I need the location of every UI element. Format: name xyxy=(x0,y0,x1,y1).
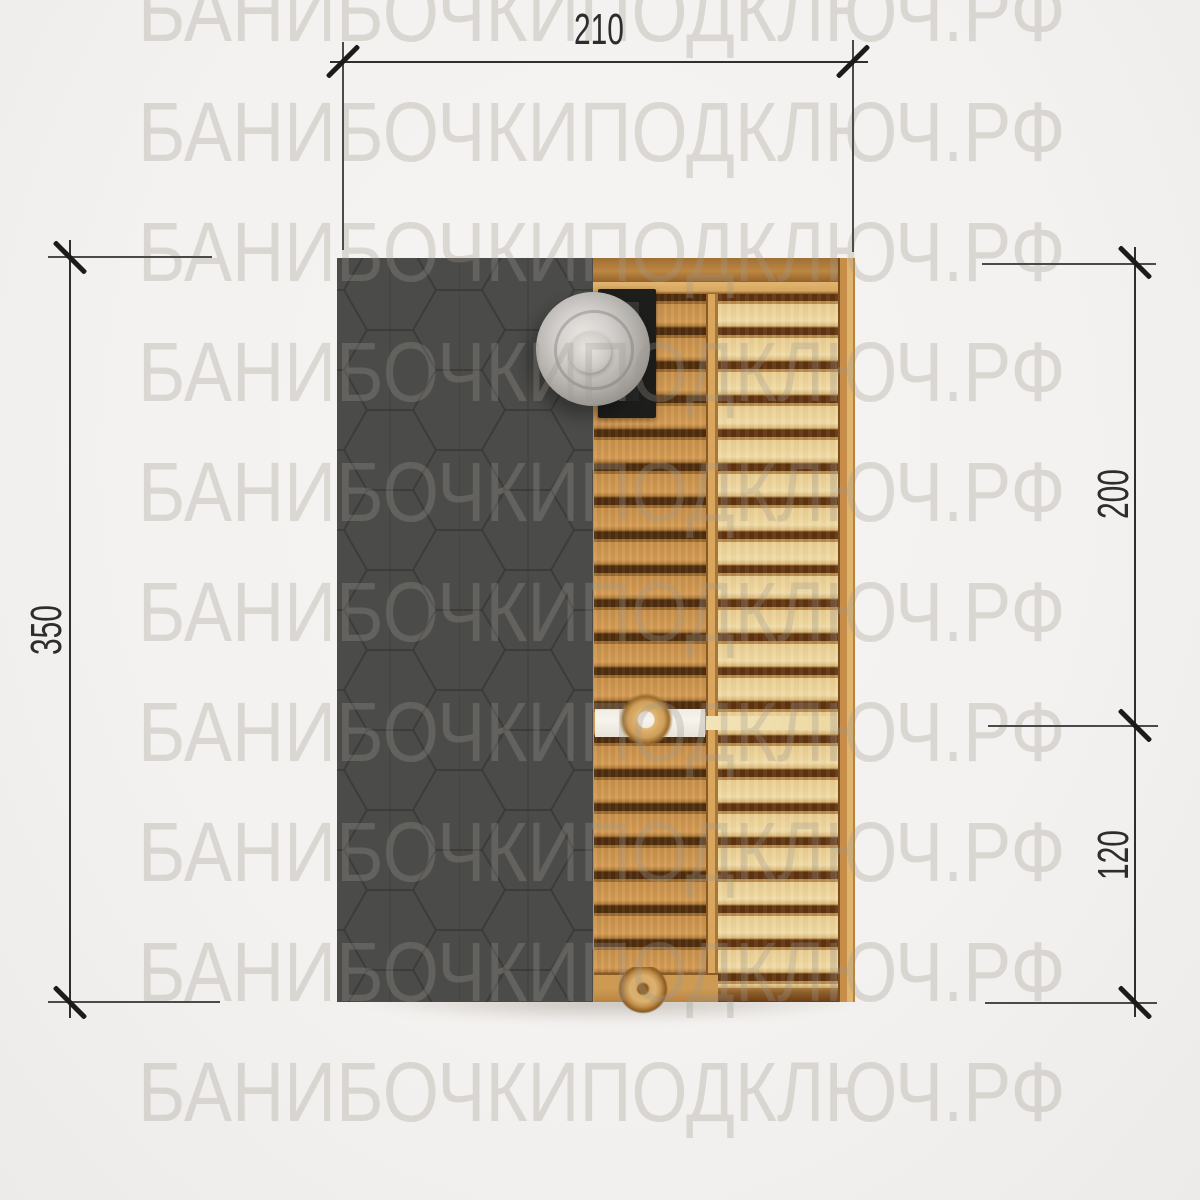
watermark-row: БАНИБОЧКИПОДКЛЮЧ.РФ xyxy=(138,90,1170,174)
dimension-line xyxy=(330,61,868,63)
extension-line xyxy=(982,263,1156,265)
dimension-line xyxy=(1134,247,1136,1017)
watermark-row: БАНИБОЧКИПОДКЛЮЧ.РФ xyxy=(138,1050,1170,1134)
sauna-plan xyxy=(337,258,855,1002)
chimney-cap-icon xyxy=(536,292,650,406)
drawing-canvas: БАНИБОЧКИПОДКЛЮЧ.РФ БАНИБОЧКИПОДКЛЮЧ.РФ … xyxy=(0,0,1200,1200)
extension-line xyxy=(852,40,854,252)
dimension-label-length: 350 xyxy=(25,589,69,671)
watermark-row: БАНИБОЧКИПОДКЛЮЧ.РФ xyxy=(138,0,1170,54)
top-wall-frame xyxy=(593,258,855,282)
entry-door-handle xyxy=(618,967,668,1019)
bench-plank-grain xyxy=(718,294,838,988)
dimension-label-width: 210 xyxy=(558,8,640,52)
bench-divider-rail xyxy=(706,294,718,973)
dimension-label-steam-room: 200 xyxy=(1092,453,1136,535)
interior-door-handle xyxy=(618,693,674,751)
right-wall-frame xyxy=(838,258,855,1002)
partition-shelf-strip xyxy=(706,716,838,730)
dimension-label-entry: 120 xyxy=(1092,814,1136,896)
extension-line xyxy=(342,42,344,250)
bench-bottom-shadow xyxy=(718,984,838,1002)
chimney-pipe-top xyxy=(569,331,611,373)
